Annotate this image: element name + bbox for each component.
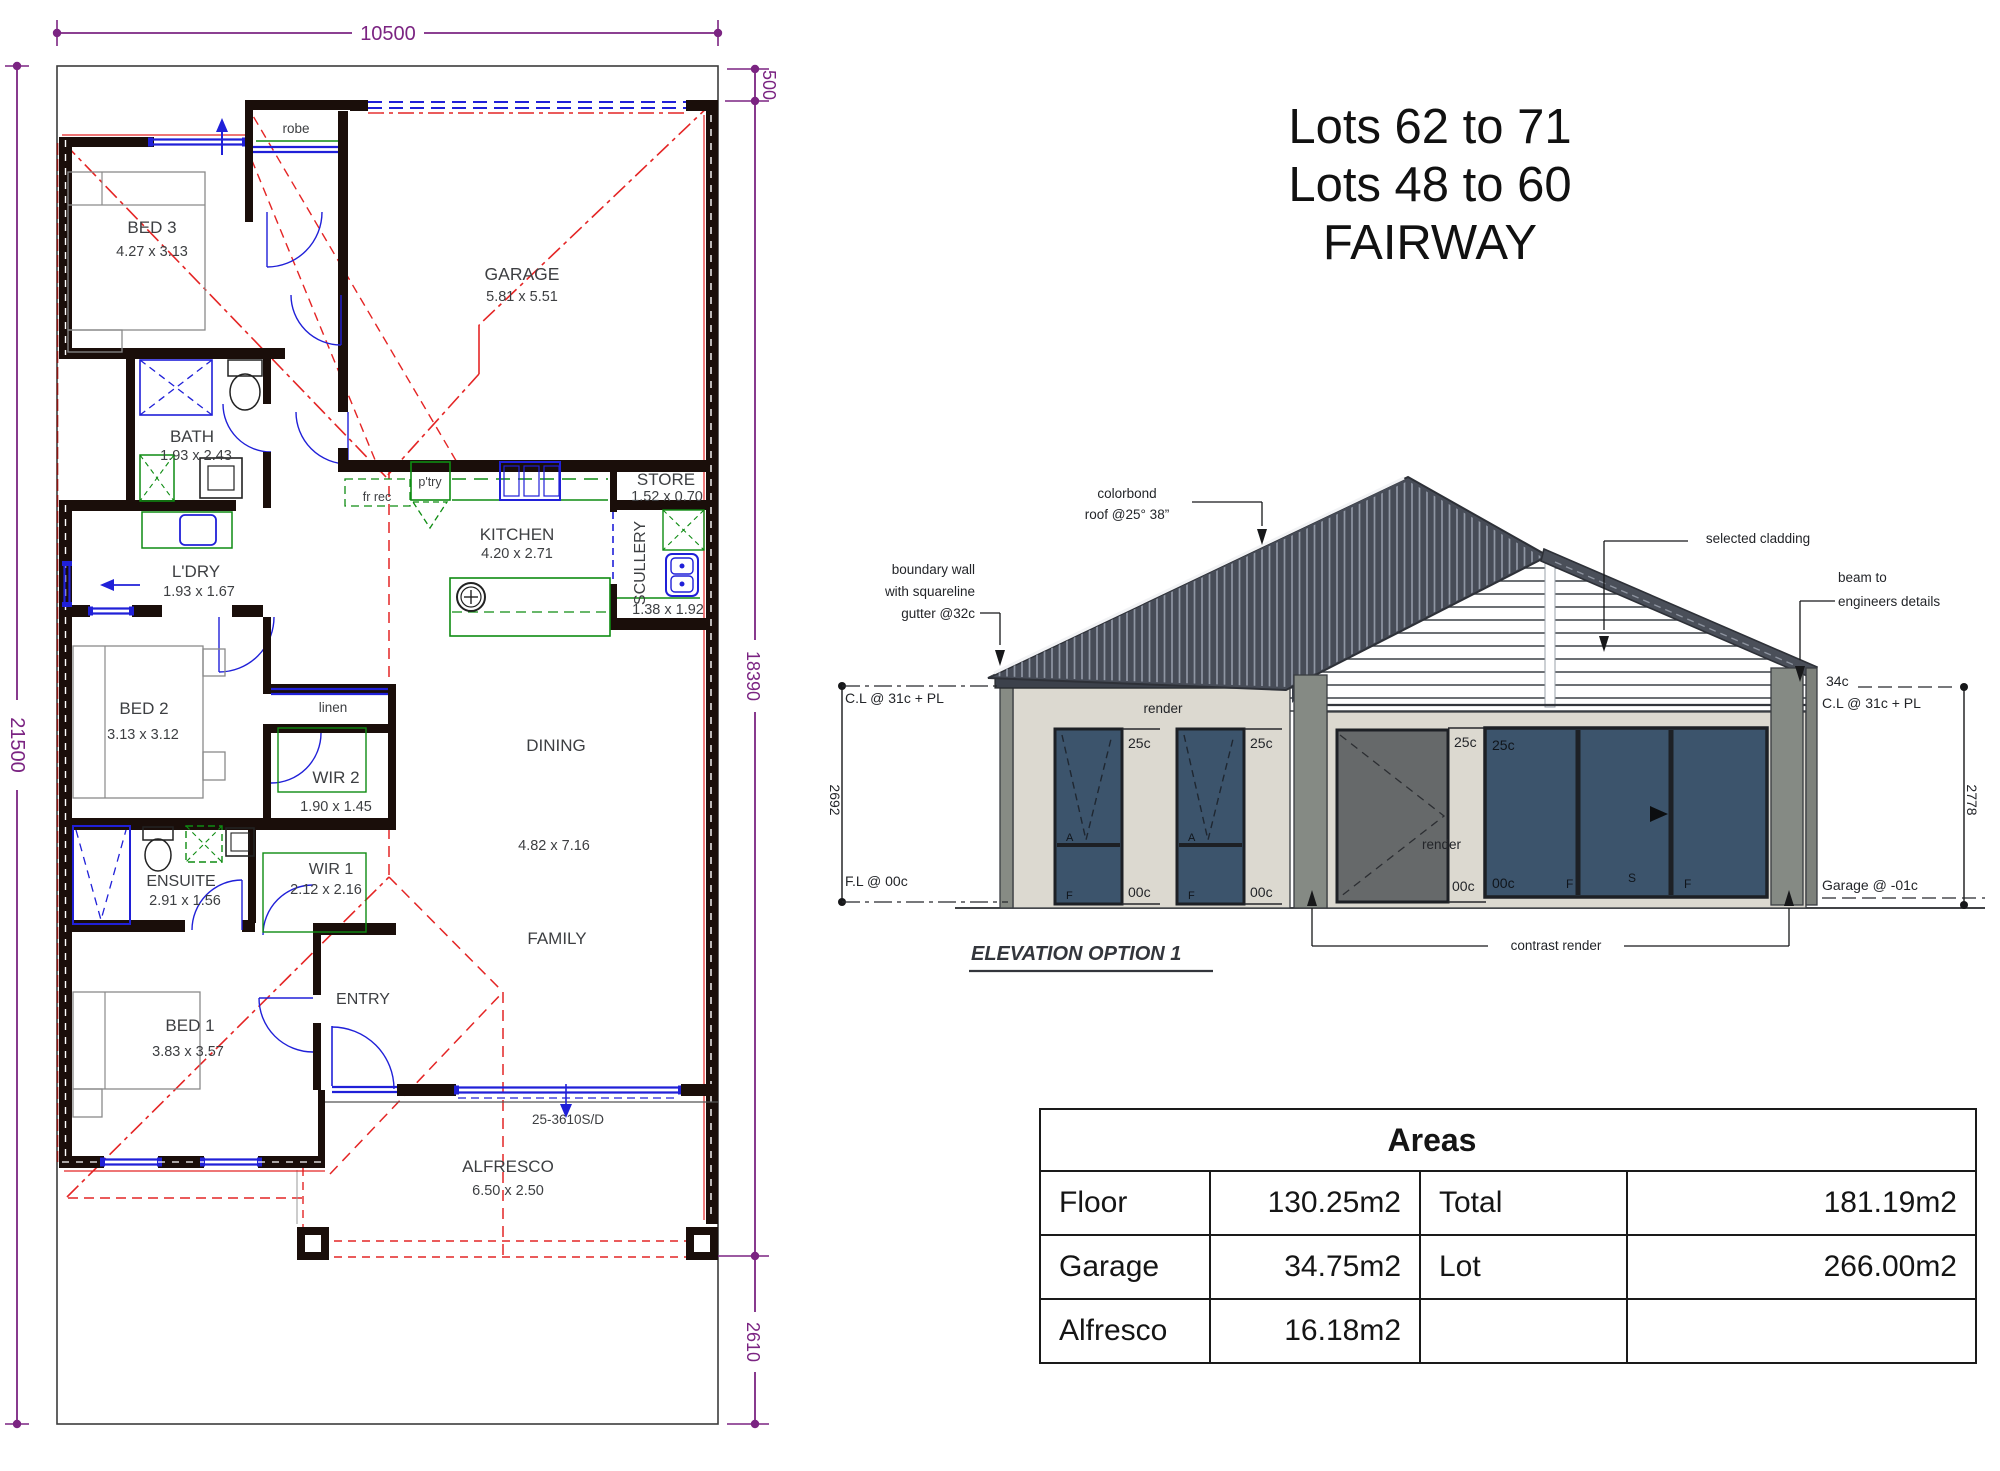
svg-text:L'DRY: L'DRY [172, 562, 220, 581]
svg-text:6.50 x 2.50: 6.50 x 2.50 [472, 1183, 544, 1199]
svg-text:roof @25° 38”: roof @25° 38” [1085, 507, 1169, 522]
svg-text:WIR 1: WIR 1 [309, 861, 354, 878]
svg-text:1.38 x 1.92: 1.38 x 1.92 [632, 602, 704, 618]
svg-text:00c: 00c [1128, 884, 1151, 900]
svg-text:25c: 25c [1454, 734, 1477, 750]
svg-text:21500: 21500 [6, 717, 28, 773]
svg-text:A: A [1066, 832, 1074, 844]
svg-text:STORE: STORE [637, 470, 695, 489]
svg-text:25c: 25c [1492, 737, 1515, 753]
svg-text:ENSUITE: ENSUITE [146, 873, 215, 890]
svg-text:fr rec: fr rec [363, 490, 391, 504]
svg-text:C.L @ 31c + PL: C.L @ 31c + PL [1822, 695, 1921, 711]
svg-text:GARAGE: GARAGE [485, 264, 560, 284]
svg-text:C.L @ 31c + PL: C.L @ 31c + PL [845, 690, 944, 706]
svg-text:F: F [1566, 877, 1573, 891]
svg-text:p'try: p'try [418, 475, 442, 489]
svg-text:3.83 x 3.57: 3.83 x 3.57 [152, 1044, 224, 1060]
svg-text:colorbond: colorbond [1097, 486, 1156, 501]
svg-text:ELEVATION OPTION 1: ELEVATION OPTION 1 [971, 943, 1181, 965]
svg-text:4.82 x 7.16: 4.82 x 7.16 [518, 838, 590, 854]
svg-text:beam to: beam to [1838, 570, 1887, 585]
svg-text:4.27 x 3.13: 4.27 x 3.13 [116, 244, 188, 260]
svg-text:500: 500 [759, 70, 779, 100]
svg-text:4.20 x 2.71: 4.20 x 2.71 [481, 546, 553, 562]
svg-text:S: S [1628, 871, 1636, 885]
svg-text:1.93 x 1.67: 1.93 x 1.67 [163, 584, 235, 600]
svg-text:2610: 2610 [743, 1322, 763, 1362]
svg-text:00c: 00c [1492, 875, 1515, 891]
svg-text:2.91 x 1.56: 2.91 x 1.56 [149, 893, 221, 909]
svg-text:00c: 00c [1250, 884, 1273, 900]
svg-text:DINING: DINING [526, 736, 586, 755]
svg-text:WIR 2: WIR 2 [312, 768, 359, 787]
svg-text:KITCHEN: KITCHEN [480, 525, 555, 544]
svg-text:engineers details: engineers details [1838, 594, 1940, 609]
svg-text:A: A [1188, 832, 1196, 844]
svg-text:1.93 x 2.43: 1.93 x 2.43 [160, 448, 232, 464]
svg-text:5.81 x 5.51: 5.81 x 5.51 [486, 289, 558, 305]
svg-text:BED 1: BED 1 [165, 1016, 214, 1035]
svg-text:render: render [1422, 837, 1462, 852]
svg-text:selected cladding: selected cladding [1706, 531, 1810, 546]
svg-text:25c: 25c [1250, 735, 1273, 751]
svg-text:3.13 x 3.12: 3.13 x 3.12 [107, 727, 179, 743]
svg-text:with squareline: with squareline [884, 584, 975, 599]
svg-text:gutter @32c: gutter @32c [901, 606, 975, 621]
svg-text:ALFRESCO: ALFRESCO [462, 1157, 554, 1176]
svg-text:34c: 34c [1826, 673, 1849, 689]
svg-text:F: F [1066, 890, 1073, 902]
svg-text:2692: 2692 [827, 784, 843, 815]
svg-text:BED 3: BED 3 [127, 218, 176, 237]
svg-text:1.90 x 1.45: 1.90 x 1.45 [300, 799, 372, 815]
svg-text:robe: robe [282, 121, 309, 136]
svg-text:render: render [1143, 701, 1183, 716]
svg-text:2778: 2778 [1964, 784, 1980, 815]
svg-text:F: F [1684, 877, 1691, 891]
svg-text:ENTRY: ENTRY [336, 991, 390, 1008]
svg-text:Garage @ -01c: Garage @ -01c [1822, 877, 1918, 893]
svg-text:BED 2: BED 2 [119, 699, 168, 718]
svg-text:F: F [1188, 890, 1195, 902]
svg-text:10500: 10500 [360, 23, 416, 45]
svg-text:00c: 00c [1452, 878, 1475, 894]
svg-text:1.52 x 0.70: 1.52 x 0.70 [631, 489, 703, 505]
svg-text:25-3610S/D: 25-3610S/D [532, 1112, 604, 1127]
svg-text:FAMILY: FAMILY [527, 929, 586, 948]
svg-text:2.12 x 2.16: 2.12 x 2.16 [290, 882, 362, 898]
svg-text:linen: linen [319, 700, 348, 715]
svg-text:25c: 25c [1128, 735, 1151, 751]
svg-text:boundary wall: boundary wall [892, 562, 975, 577]
svg-text:SCULLERY: SCULLERY [632, 521, 649, 606]
svg-text:F.L @ 00c: F.L @ 00c [845, 873, 908, 889]
svg-text:BATH: BATH [170, 427, 214, 446]
svg-text:18390: 18390 [743, 651, 763, 701]
svg-text:contrast render: contrast render [1511, 938, 1602, 953]
